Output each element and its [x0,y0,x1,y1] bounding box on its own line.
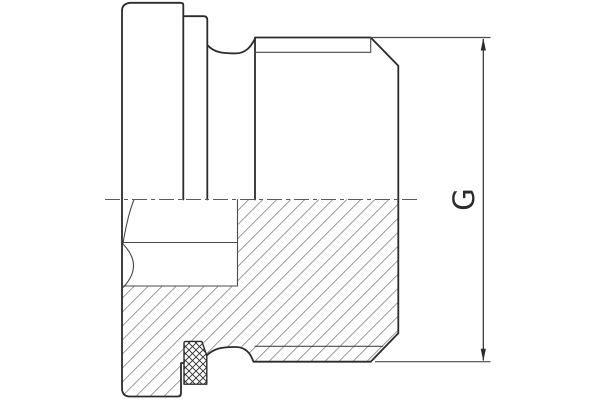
hex-socket-cavity [122,200,238,288]
section-hatch-area [122,200,398,397]
drawing-canvas: G [0,0,600,400]
collar-outline [183,16,207,199]
dimension-label: G [447,188,481,210]
seal-ring-section [184,341,207,384]
thread-runout-top [207,39,255,54]
thread-outline-top [255,38,398,200]
socket-arc-upper [123,200,134,244]
socket-arc-lower [123,244,134,288]
technical-drawing-svg: G [0,0,600,400]
dimension-arrow-up-icon [481,38,486,50]
dimension-arrow-down-icon [481,349,486,361]
